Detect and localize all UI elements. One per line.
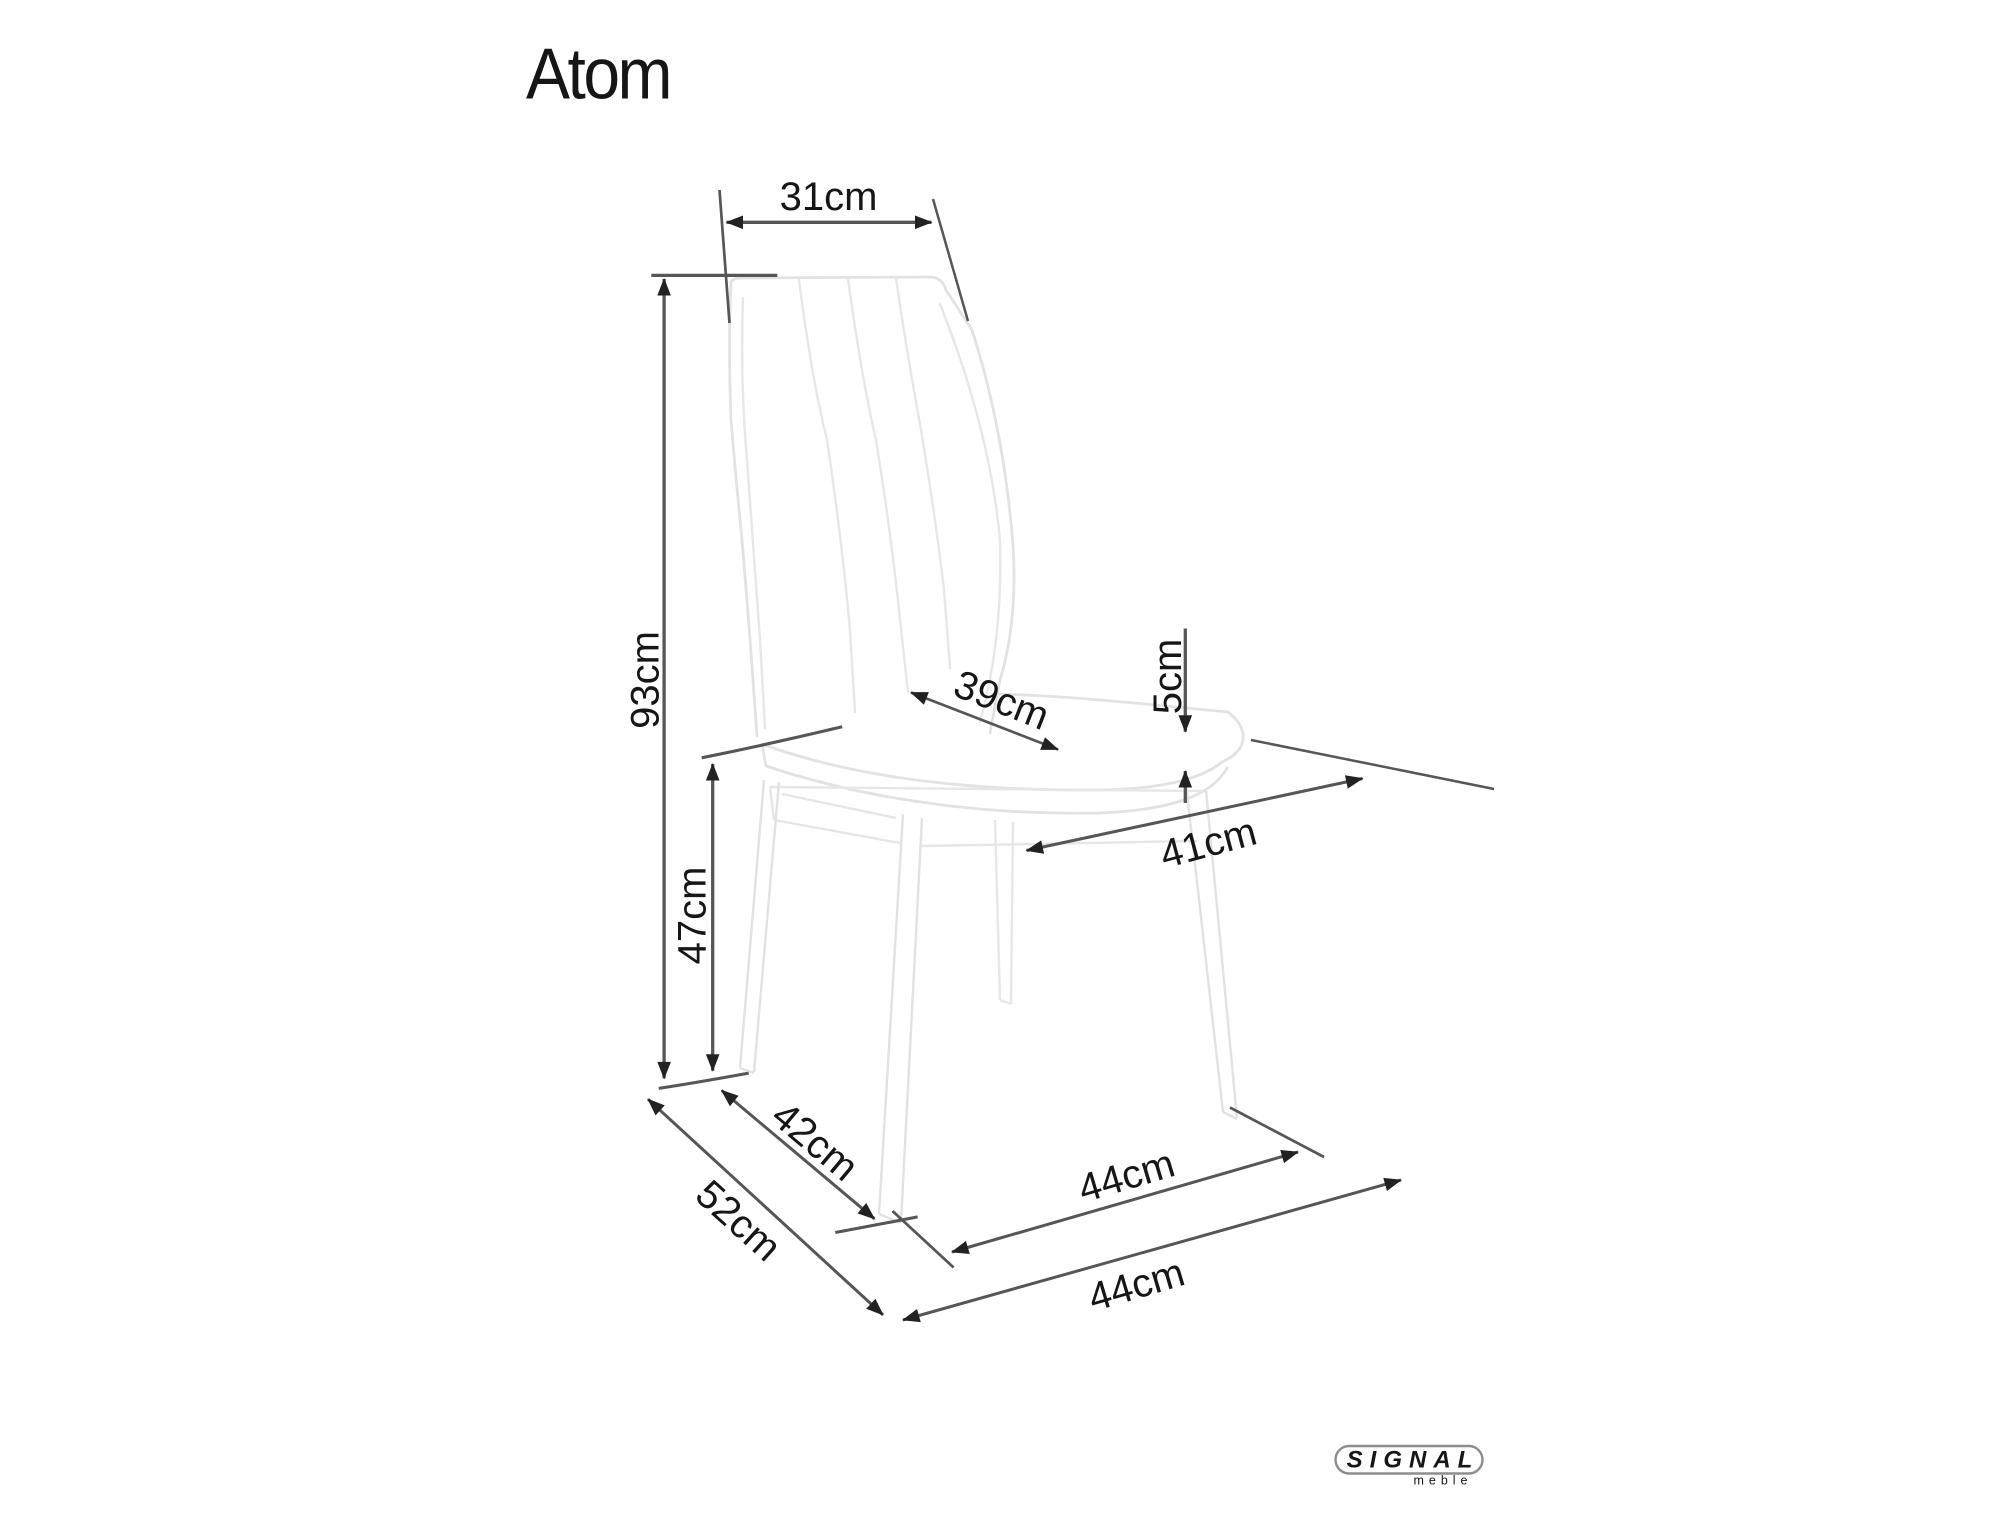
- svg-text:SIGNAL: SIGNAL: [1347, 1447, 1480, 1474]
- svg-text:93cm: 93cm: [624, 631, 668, 729]
- svg-text:meble: meble: [1413, 1474, 1472, 1488]
- svg-text:47cm: 47cm: [671, 867, 715, 965]
- svg-text:5cm: 5cm: [1146, 639, 1190, 715]
- svg-text:31cm: 31cm: [780, 175, 878, 219]
- svg-text:Atom: Atom: [526, 34, 670, 114]
